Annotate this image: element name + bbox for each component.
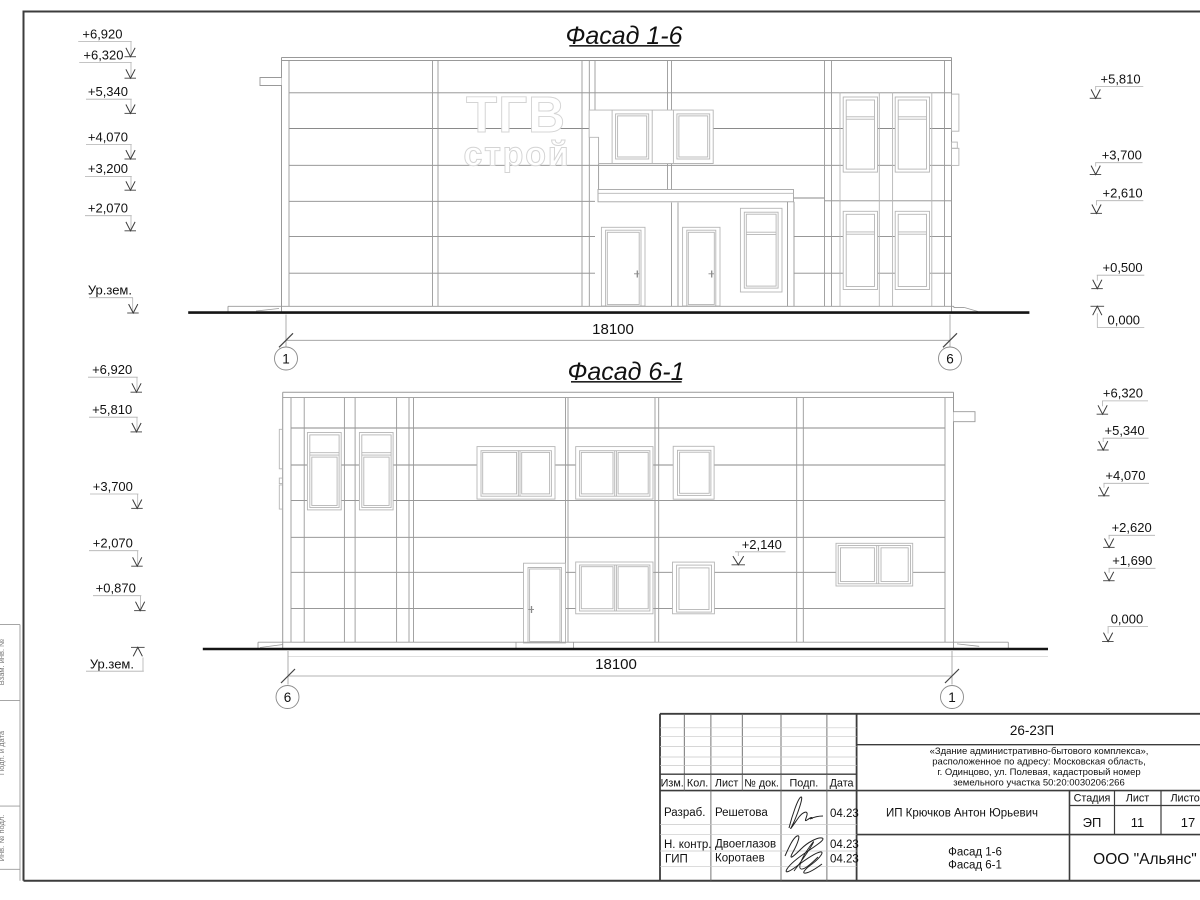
svg-text:ЭП: ЭП bbox=[1083, 815, 1102, 830]
svg-text:расположенное по адресу: Моско: расположенное по адресу: Московская обла… bbox=[932, 757, 1145, 768]
svg-text:04.23: 04.23 bbox=[830, 808, 859, 820]
svg-text:Фасад 6-1: Фасад 6-1 bbox=[948, 860, 1002, 872]
svg-text:Н. контр.: Н. контр. bbox=[664, 839, 711, 851]
svg-text:Лист: Лист bbox=[715, 777, 739, 789]
svg-text:17: 17 bbox=[1181, 815, 1195, 830]
svg-text:Разраб.: Разраб. bbox=[664, 807, 705, 819]
svg-text:+5,340: +5,340 bbox=[1105, 423, 1145, 438]
svg-text:+5,810: +5,810 bbox=[92, 402, 132, 417]
svg-text:Коротаев: Коротаев bbox=[715, 853, 765, 865]
svg-text:Дата: Дата bbox=[830, 777, 854, 789]
svg-text:+5,340: +5,340 bbox=[88, 84, 128, 99]
svg-text:ГИП: ГИП bbox=[665, 854, 688, 866]
svg-text:+6,920: +6,920 bbox=[82, 26, 122, 41]
svg-text:6: 6 bbox=[284, 690, 292, 705]
svg-text:строй: строй bbox=[464, 136, 571, 174]
svg-text:Ур.зем.: Ур.зем. bbox=[88, 283, 132, 298]
svg-text:№ док.: № док. bbox=[744, 777, 779, 789]
svg-text:Кол.: Кол. bbox=[687, 777, 708, 789]
svg-text:+3,200: +3,200 bbox=[88, 161, 128, 176]
svg-text:+4,070: +4,070 bbox=[88, 129, 128, 144]
svg-text:+2,070: +2,070 bbox=[88, 201, 128, 216]
svg-text:Решетова: Решетова bbox=[715, 807, 768, 819]
svg-text:+3,700: +3,700 bbox=[1102, 148, 1142, 163]
svg-text:1: 1 bbox=[948, 690, 956, 705]
svg-text:+0,500: +0,500 bbox=[1103, 260, 1143, 275]
svg-text:ООО "Альянс": ООО "Альянс" bbox=[1093, 851, 1197, 868]
svg-text:Фасад 1-6: Фасад 1-6 bbox=[948, 847, 1002, 859]
svg-text:04.23: 04.23 bbox=[830, 839, 859, 851]
svg-text:+4,070: +4,070 bbox=[1105, 468, 1145, 483]
svg-text:+5,810: +5,810 bbox=[1101, 71, 1141, 86]
svg-text:+2,610: +2,610 bbox=[1103, 186, 1143, 201]
svg-text:0,000: 0,000 bbox=[1108, 312, 1141, 327]
svg-text:0,000: 0,000 bbox=[1111, 611, 1144, 626]
svg-text:Стадия: Стадия bbox=[1074, 793, 1111, 805]
svg-text:Листов: Листов bbox=[1170, 793, 1200, 805]
svg-text:Взам. инв. №: Взам. инв. № bbox=[0, 639, 6, 685]
svg-text:Лист: Лист bbox=[1126, 793, 1150, 805]
svg-text:+0,870: +0,870 bbox=[96, 581, 136, 596]
svg-text:г. Одинцово, ул. Полевая, када: г. Одинцово, ул. Полевая, кадастровый но… bbox=[937, 767, 1140, 778]
svg-text:ИП Крючков Антон Юрьевич: ИП Крючков Антон Юрьевич bbox=[886, 808, 1038, 820]
svg-text:+1,690: +1,690 bbox=[1112, 553, 1152, 568]
svg-text:6: 6 bbox=[946, 351, 954, 366]
svg-text:+6,320: +6,320 bbox=[1103, 386, 1143, 401]
svg-text:Инв. № подл.: Инв. № подл. bbox=[0, 815, 6, 862]
svg-text:26-23П: 26-23П bbox=[1010, 723, 1054, 738]
svg-text:Двоеглазов: Двоеглазов bbox=[715, 839, 776, 851]
svg-text:+2,140: +2,140 bbox=[742, 537, 782, 552]
svg-text:1: 1 bbox=[282, 351, 290, 366]
svg-text:Подп.: Подп. bbox=[790, 777, 819, 789]
svg-text:Ур.зем.: Ур.зем. bbox=[90, 656, 134, 671]
svg-text:+2,070: +2,070 bbox=[93, 536, 133, 551]
svg-text:Подп. и дата: Подп. и дата bbox=[0, 730, 6, 775]
svg-text:Изм.: Изм. bbox=[661, 777, 684, 789]
svg-text:ТГВ: ТГВ bbox=[466, 86, 566, 143]
svg-text:+3,700: +3,700 bbox=[93, 479, 133, 494]
svg-text:04.23: 04.23 bbox=[830, 854, 859, 866]
svg-text:+6,920: +6,920 bbox=[92, 362, 132, 377]
svg-text:18100: 18100 bbox=[595, 656, 637, 673]
svg-text:земельного участка 50:20:00302: земельного участка 50:20:0030206:266 bbox=[953, 777, 1125, 788]
svg-text:11: 11 bbox=[1131, 815, 1145, 830]
svg-text:+2,620: +2,620 bbox=[1112, 520, 1152, 535]
svg-text:+6,320: +6,320 bbox=[83, 47, 123, 62]
svg-text:«Здание административно-бытово: «Здание административно-бытового комплек… bbox=[930, 746, 1149, 757]
svg-text:18100: 18100 bbox=[592, 321, 634, 338]
